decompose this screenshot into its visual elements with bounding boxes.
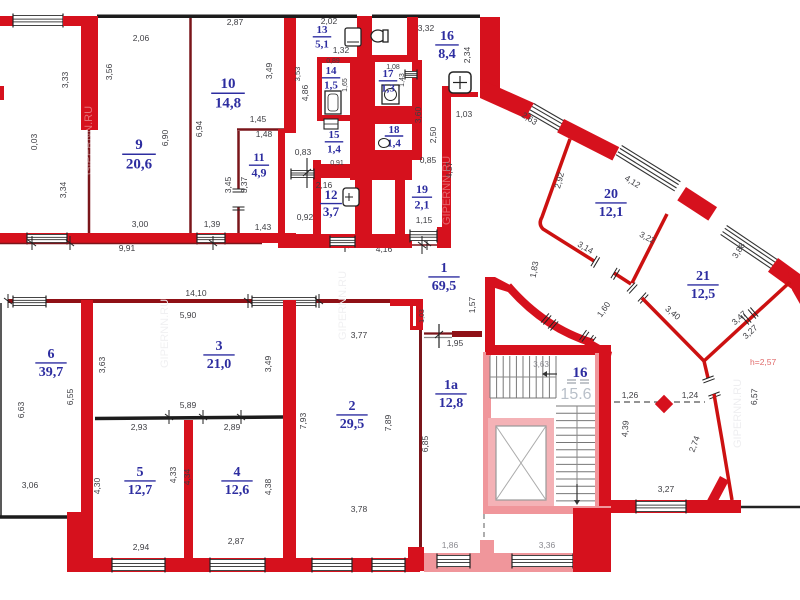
svg-text:19: 19: [416, 182, 428, 196]
svg-text:9,91: 9,91: [119, 243, 136, 253]
svg-text:6,85: 6,85: [420, 435, 430, 452]
svg-text:0,89: 0,89: [326, 58, 340, 65]
svg-text:15.6: 15.6: [560, 386, 591, 403]
svg-text:4,9: 4,9: [252, 166, 267, 180]
svg-text:4,39: 4,39: [619, 420, 630, 438]
svg-text:4,34: 4,34: [182, 468, 192, 485]
svg-text:69,5: 69,5: [432, 279, 457, 294]
svg-text:6,94: 6,94: [194, 120, 204, 137]
svg-text:3,78: 3,78: [351, 504, 368, 514]
svg-text:4: 4: [234, 465, 241, 480]
svg-text:8,4: 8,4: [438, 47, 456, 62]
svg-text:4,38: 4,38: [263, 478, 273, 495]
svg-text:21: 21: [696, 269, 710, 284]
svg-text:3,63: 3,63: [533, 360, 549, 369]
svg-text:3,53: 3,53: [293, 67, 302, 82]
svg-text:3,36: 3,36: [539, 540, 556, 550]
svg-text:2,1: 2,1: [415, 198, 430, 212]
svg-text:3,45: 3,45: [223, 176, 233, 193]
svg-text:2,94: 2,94: [133, 542, 150, 552]
svg-text:29,5: 29,5: [340, 417, 365, 432]
svg-text:6,55: 6,55: [65, 388, 75, 405]
svg-text:1,5: 1,5: [324, 79, 338, 91]
svg-text:4,33: 4,33: [168, 466, 178, 483]
svg-text:3,32: 3,32: [418, 23, 435, 33]
svg-text:16: 16: [573, 365, 589, 381]
svg-text:5: 5: [137, 465, 144, 480]
svg-text:5,90: 5,90: [180, 310, 197, 320]
svg-text:GIPERNN.RU: GIPERNN.RU: [337, 271, 349, 340]
svg-text:3,00: 3,00: [132, 219, 149, 229]
svg-text:1a: 1a: [444, 378, 458, 393]
svg-text:0,92: 0,92: [297, 212, 314, 222]
svg-text:2,89: 2,89: [224, 422, 241, 432]
svg-text:1,95: 1,95: [447, 338, 464, 348]
svg-text:3,34: 3,34: [58, 181, 68, 198]
svg-text:14: 14: [326, 65, 338, 77]
svg-text:3,33: 3,33: [60, 71, 70, 88]
svg-text:7,89: 7,89: [383, 414, 393, 431]
svg-text:1,26: 1,26: [622, 390, 639, 400]
svg-text:2,87: 2,87: [228, 536, 245, 546]
svg-text:3,7: 3,7: [323, 204, 340, 219]
svg-text:2: 2: [349, 399, 356, 414]
svg-text:3,56: 3,56: [104, 63, 114, 80]
svg-text:3,49: 3,49: [264, 62, 274, 79]
svg-text:6,57: 6,57: [749, 388, 760, 405]
svg-text:0,85: 0,85: [420, 155, 437, 165]
svg-text:1: 1: [441, 261, 448, 276]
svg-text:9: 9: [135, 137, 143, 153]
svg-text:1,57: 1,57: [467, 296, 477, 313]
svg-text:1,08: 1,08: [386, 64, 400, 71]
svg-text:2,34: 2,34: [462, 46, 472, 63]
svg-text:12,7: 12,7: [128, 483, 153, 498]
svg-text:11: 11: [253, 150, 264, 164]
svg-text:3,77: 3,77: [351, 330, 368, 340]
svg-text:1,45: 1,45: [250, 114, 267, 124]
svg-text:18: 18: [389, 124, 401, 136]
svg-text:GIPERNN.RU: GIPERNN.RU: [159, 299, 171, 368]
svg-text:10: 10: [221, 76, 236, 92]
svg-text:3,37: 3,37: [239, 176, 249, 193]
svg-text:3,60: 3,60: [413, 106, 423, 123]
svg-text:2,93: 2,93: [131, 422, 148, 432]
svg-text:39,7: 39,7: [39, 365, 64, 380]
svg-text:2,16: 2,16: [316, 180, 333, 190]
svg-text:5,1: 5,1: [315, 38, 329, 50]
svg-text:12,6: 12,6: [225, 483, 250, 498]
svg-text:3,63: 3,63: [97, 356, 107, 373]
svg-text:1,15: 1,15: [416, 215, 433, 225]
svg-text:1,39: 1,39: [204, 219, 221, 229]
svg-text:1,3: 1,3: [381, 82, 395, 94]
svg-text:5,89: 5,89: [180, 400, 197, 410]
svg-text:GIPERNN.RU: GIPERNN.RU: [83, 106, 95, 175]
svg-text:12,5: 12,5: [691, 287, 716, 302]
svg-text:6,90: 6,90: [160, 129, 170, 146]
svg-text:6,63: 6,63: [16, 401, 26, 418]
svg-text:0,03: 0,03: [29, 133, 39, 150]
svg-text:4,30: 4,30: [92, 477, 102, 494]
svg-text:3,49: 3,49: [263, 355, 273, 372]
svg-text:h=2,57: h=2,57: [750, 357, 777, 367]
svg-text:1,03: 1,03: [419, 309, 426, 323]
svg-text:2,87: 2,87: [227, 17, 244, 27]
svg-text:0,83: 0,83: [295, 147, 312, 157]
svg-text:4,86: 4,86: [300, 84, 310, 101]
svg-text:1,4: 1,4: [327, 143, 341, 155]
svg-text:GIPERNN.RU: GIPERNN.RU: [441, 156, 453, 225]
svg-text:3,06: 3,06: [22, 480, 39, 490]
svg-text:21,0: 21,0: [207, 357, 232, 372]
svg-text:15: 15: [329, 129, 341, 141]
svg-text:12,8: 12,8: [439, 396, 464, 411]
svg-text:14,10: 14,10: [185, 288, 207, 298]
svg-text:16: 16: [440, 29, 454, 44]
svg-text:3,27: 3,27: [658, 484, 675, 494]
svg-text:2,50: 2,50: [428, 126, 438, 143]
svg-text:1,65: 1,65: [342, 78, 349, 92]
svg-text:1,24: 1,24: [682, 390, 699, 400]
svg-text:1,03: 1,03: [456, 109, 473, 119]
svg-text:20,6: 20,6: [126, 157, 153, 173]
svg-text:2,02: 2,02: [321, 16, 338, 26]
svg-text:6: 6: [48, 347, 55, 362]
svg-text:0,91: 0,91: [330, 160, 344, 167]
svg-text:1,43: 1,43: [255, 222, 272, 232]
svg-text:GIPERNN.RU: GIPERNN.RU: [732, 379, 744, 448]
svg-text:1,86: 1,86: [442, 540, 459, 550]
svg-text:3: 3: [216, 339, 223, 354]
svg-text:2,06: 2,06: [133, 33, 150, 43]
svg-text:14,8: 14,8: [215, 96, 241, 112]
svg-text:7,93: 7,93: [298, 412, 308, 429]
svg-text:20: 20: [604, 187, 618, 202]
svg-text:12,1: 12,1: [599, 205, 624, 220]
